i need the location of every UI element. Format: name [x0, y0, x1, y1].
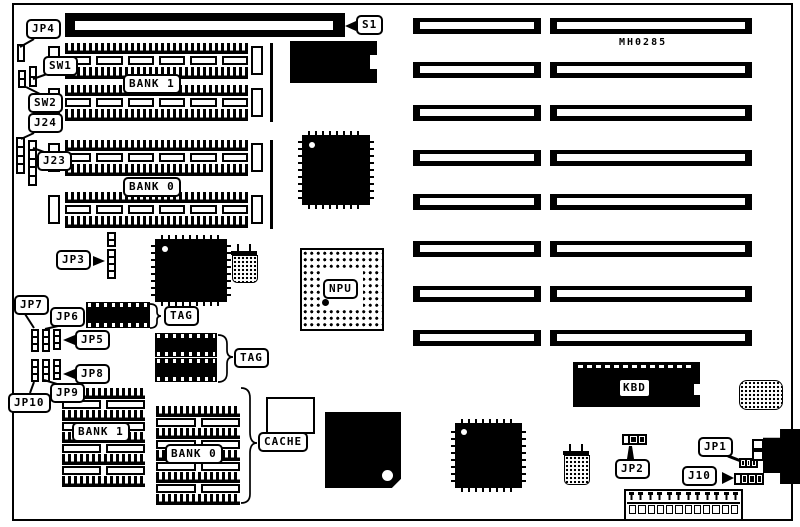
power-connector: [624, 489, 743, 521]
expansion-slot: [550, 150, 752, 166]
pin1-dot: [461, 429, 467, 435]
simm-socket-row: [48, 140, 274, 176]
callout-jp9: JP9: [50, 383, 85, 403]
j23-header: [28, 140, 37, 186]
qfp-pins-top: [161, 235, 221, 239]
header-pin: [109, 265, 114, 270]
power-cell: [657, 505, 664, 514]
qfp-pins-right: [370, 141, 374, 199]
module-chip: [222, 205, 248, 214]
expansion-slot: [413, 18, 541, 34]
module-chip: [159, 98, 185, 107]
expansion-slot: [550, 105, 752, 121]
module-chip: [65, 98, 91, 107]
power-pin: [724, 492, 729, 500]
header-pin: [18, 148, 23, 155]
expansion-slot: [413, 62, 541, 78]
u33-chip: [155, 358, 217, 382]
qfp-chip-1: [155, 239, 227, 302]
j10-header: [734, 473, 764, 485]
jumper-pin: [44, 345, 48, 350]
callout-s1: S1: [356, 15, 383, 35]
expansion-slot-contact: [557, 334, 745, 341]
power-cell: [722, 505, 729, 514]
module-chip: [190, 98, 216, 107]
jumper-pin: [55, 331, 59, 335]
power-cell: [666, 505, 673, 514]
module-chip: [159, 153, 185, 162]
contact-row: [62, 476, 145, 487]
socket-rail: [270, 140, 273, 229]
power-pin: [629, 492, 634, 500]
module-chip: [201, 484, 241, 493]
expansion-slot-contact: [557, 290, 745, 297]
expansion-slot-contact: [557, 245, 745, 252]
jumper-pin: [33, 338, 37, 343]
module-row: [65, 205, 248, 214]
header-pin: [109, 272, 114, 277]
callout-sw2: SW2: [28, 93, 63, 113]
kbd-chip-label: KBD: [620, 380, 649, 396]
motherboard-diagram: BIOS MH0285 NPU CPU KBD: [0, 0, 800, 527]
module-chip: [96, 98, 122, 107]
chip-pins: [157, 334, 215, 338]
header-pin: [749, 475, 755, 483]
expansion-slot: [413, 105, 541, 121]
contact-row: [156, 494, 240, 505]
module-chip: [222, 98, 248, 107]
callout-sw1: SW1: [43, 56, 78, 76]
module-row: [62, 444, 145, 453]
jumper-jp5: [53, 329, 61, 350]
callout-j23: J23: [37, 151, 72, 171]
power-pin: [638, 492, 643, 500]
jumper-pin: [44, 338, 48, 343]
power-pin-row: [629, 492, 738, 501]
power-cell: [638, 505, 645, 514]
bios-chip-notch: [370, 55, 378, 69]
module-chip: [96, 205, 122, 214]
jumper-pin: [55, 337, 59, 341]
chip-pins: [88, 323, 148, 327]
qfp-pins-top: [461, 419, 516, 423]
u42-chip: [86, 302, 150, 328]
cache-bank0-label: BANK 0: [165, 444, 223, 464]
power-cell: [703, 505, 710, 514]
power-cell: [675, 505, 682, 514]
socket-latch: [251, 88, 263, 117]
module-chip: [201, 418, 241, 427]
module-chip: [128, 98, 154, 107]
expansion-slot-contact: [420, 198, 534, 205]
module-chip: [222, 56, 248, 65]
din-sub-connector: [752, 450, 764, 461]
callout-jp2: JP2: [615, 459, 650, 479]
power-pin: [705, 492, 710, 500]
qfp-chip-3: [455, 423, 522, 488]
contact-row: [65, 140, 248, 151]
jumper-pin: [44, 375, 48, 380]
u32-chip: [155, 333, 217, 357]
callout-jp4: JP4: [26, 19, 61, 39]
jumper-pin: [44, 361, 48, 366]
board-part-number: MH0285: [619, 37, 667, 48]
jp3-header-b: [107, 249, 116, 279]
expansion-slot: [550, 286, 752, 302]
power-pin: [733, 492, 738, 500]
din-sub-connector: [752, 439, 764, 450]
header-pin: [18, 139, 23, 146]
module-chip: [106, 444, 145, 453]
expansion-slot: [413, 194, 541, 210]
cache-bank1-label: BANK 1: [72, 422, 130, 442]
module-row: [156, 484, 240, 493]
expansion-slot-contact: [420, 245, 534, 252]
simm-bank0-label: BANK 0: [123, 177, 181, 197]
kbd-chip-notch: [694, 384, 700, 395]
jumper-pin: [55, 344, 59, 348]
socket-latch: [251, 46, 263, 75]
jumper-pin: [33, 331, 37, 336]
contact-row: [156, 428, 240, 439]
module-row: [65, 56, 248, 65]
callout-j10: J10: [682, 466, 717, 486]
header-pin: [109, 251, 114, 256]
module-chip: [96, 56, 122, 65]
qfp-pins-left: [151, 245, 155, 296]
oscillator-component: [739, 380, 783, 410]
jumper-jp8: [53, 359, 61, 380]
module-chip: [159, 205, 185, 214]
expansion-slot-contact: [420, 290, 534, 297]
header-pin: [757, 475, 763, 483]
chip-pins: [157, 359, 215, 363]
pin1-dot: [309, 142, 315, 148]
expansion-slot-contact: [557, 109, 745, 116]
power-pin: [667, 492, 672, 500]
qfp-pins-top: [308, 131, 364, 135]
power-cell: [685, 505, 692, 514]
module-row: [65, 98, 248, 107]
contact-row: [65, 164, 248, 176]
callout-jp6: JP6: [50, 307, 85, 327]
tag-label-u32-u33: TAG: [234, 348, 269, 368]
expansion-slot-contact: [420, 22, 534, 29]
sw2-switch: [29, 66, 37, 87]
expansion-slot: [550, 330, 752, 346]
module-chip: [128, 153, 154, 162]
j24-header: [16, 137, 25, 174]
expansion-slot-contact: [557, 66, 745, 73]
cpu-pin1-dot: [382, 470, 393, 481]
module-chip: [106, 466, 145, 475]
power-cell: [629, 505, 636, 514]
expansion-slot-contact: [420, 154, 534, 161]
header-pin: [30, 177, 35, 184]
contact-row: [156, 472, 240, 483]
qfp-pins-left: [298, 141, 302, 199]
jp3-header-a: [107, 232, 116, 247]
expansion-slot: [413, 241, 541, 257]
module-chip: [106, 400, 145, 409]
module-chip: [190, 205, 216, 214]
npu-label: NPU: [323, 279, 358, 299]
chip-pins: [157, 352, 215, 356]
expansion-slot: [550, 241, 752, 257]
pin1-dot: [162, 246, 168, 252]
power-pin: [686, 492, 691, 500]
expansion-slot: [550, 18, 752, 34]
expansion-slot-contact: [557, 198, 745, 205]
expansion-slot: [413, 150, 541, 166]
header-pin: [30, 142, 35, 149]
switch-pad: [31, 68, 35, 76]
power-cell: [648, 505, 655, 514]
callout-jp7: JP7: [14, 295, 49, 315]
expansion-slot-contact: [420, 334, 534, 341]
module-chip: [128, 56, 154, 65]
qfp-pins-left: [451, 429, 455, 482]
module-chip: [65, 205, 91, 214]
chip-pins: [88, 303, 148, 307]
kbd-chip-dashed-line: [578, 365, 695, 368]
module-chip: [190, 153, 216, 162]
jumper-pin: [33, 345, 37, 350]
s1-edge-connector-slot: [75, 21, 333, 30]
jp4-jumper: [17, 44, 25, 62]
switch-pad: [20, 72, 24, 78]
header-pin: [18, 157, 23, 164]
jumper-pin: [639, 436, 645, 443]
header-pin: [30, 168, 35, 175]
header-pin: [109, 234, 114, 239]
jumper-jp7: [31, 329, 39, 352]
simm-socket-row: [48, 192, 274, 228]
jumper-pin: [741, 460, 745, 466]
contact-row: [62, 454, 145, 465]
power-pin: [676, 492, 681, 500]
module-chip: [222, 153, 248, 162]
module-chip: [128, 205, 154, 214]
jumper-jp9: [42, 359, 50, 382]
power-pin: [714, 492, 719, 500]
expansion-slot-contact: [557, 22, 745, 29]
jumper-pin: [44, 368, 48, 373]
expansion-slot-contact: [557, 154, 745, 161]
module-chip: [156, 484, 196, 493]
module-chip: [62, 466, 101, 475]
module-row: [65, 153, 248, 162]
jumper-jp10: [31, 359, 39, 382]
module-row: [156, 418, 240, 427]
jumper-pin: [55, 361, 59, 365]
jumper-pin: [33, 368, 37, 373]
module-row: [62, 466, 145, 475]
contact-row: [62, 410, 145, 421]
jumper-pin: [747, 460, 751, 466]
jumper-pin: [33, 375, 37, 380]
socket-latch: [48, 195, 60, 224]
crystal-2: [564, 455, 590, 485]
power-cell-row: [629, 505, 738, 514]
power-pin: [657, 492, 662, 500]
header-pin: [109, 241, 114, 246]
power-divider: [627, 502, 740, 504]
expansion-slot: [550, 194, 752, 210]
header-pin: [30, 151, 35, 158]
jumper-pin: [624, 436, 628, 443]
expansion-slot: [550, 62, 752, 78]
simm-bank1-label: BANK 1: [123, 74, 181, 94]
power-cell: [731, 505, 738, 514]
header-pin: [18, 165, 23, 172]
header-pin: [736, 475, 740, 483]
jumper-jp6: [42, 329, 50, 352]
header-pin: [30, 160, 35, 167]
jp2-jumper: [622, 434, 647, 445]
tag-label-u42: TAG: [164, 306, 199, 326]
callout-j24: J24: [28, 113, 63, 133]
expansion-slot: [413, 286, 541, 302]
socket-rail: [270, 43, 273, 122]
socket-latch: [251, 195, 263, 224]
callout-jp10: JP10: [8, 393, 51, 413]
power-pin: [648, 492, 653, 500]
callout-jp5: JP5: [75, 330, 110, 350]
expansion-slot-contact: [420, 66, 534, 73]
jumper-pin: [630, 436, 636, 443]
crystal-1: [232, 255, 258, 283]
qfp-pins-bottom: [461, 488, 516, 492]
power-cell: [712, 505, 719, 514]
power-cell: [694, 505, 701, 514]
module-chip: [190, 56, 216, 65]
jumper-pin: [55, 367, 59, 371]
contact-row: [156, 406, 240, 417]
socket-latch: [251, 143, 263, 172]
jumper-pin: [55, 374, 59, 378]
contact-row: [65, 43, 248, 54]
qfp-pins-bottom: [308, 205, 364, 209]
jumper-pin: [44, 331, 48, 336]
header-pin: [109, 258, 114, 263]
qfp-chip-2: [302, 135, 370, 205]
module-chip: [156, 418, 196, 427]
cache-group-label: CACHE: [258, 432, 308, 452]
jumper-pin: [19, 46, 23, 60]
contact-row: [65, 216, 248, 228]
expansion-slot-contact: [420, 109, 534, 116]
expansion-slot: [413, 330, 541, 346]
callout-jp1: JP1: [698, 437, 733, 457]
chip-pins: [157, 377, 215, 381]
module-chip: [96, 153, 122, 162]
header-pin: [742, 475, 748, 483]
callout-jp3: JP3: [56, 250, 91, 270]
switch-pad: [31, 78, 35, 86]
module-chip: [62, 444, 101, 453]
jumper-pin: [33, 361, 37, 366]
cache-socket-empty: [266, 397, 315, 434]
qfp-pins-right: [522, 429, 526, 482]
callout-jp8: JP8: [75, 364, 110, 384]
power-pin: [695, 492, 700, 500]
bios-chip: [290, 41, 377, 83]
module-chip: [159, 56, 185, 65]
contact-row: [65, 109, 248, 121]
sw1-switch: [18, 70, 26, 88]
switch-pad: [20, 80, 24, 86]
npu-pin1-dot: [322, 299, 329, 306]
